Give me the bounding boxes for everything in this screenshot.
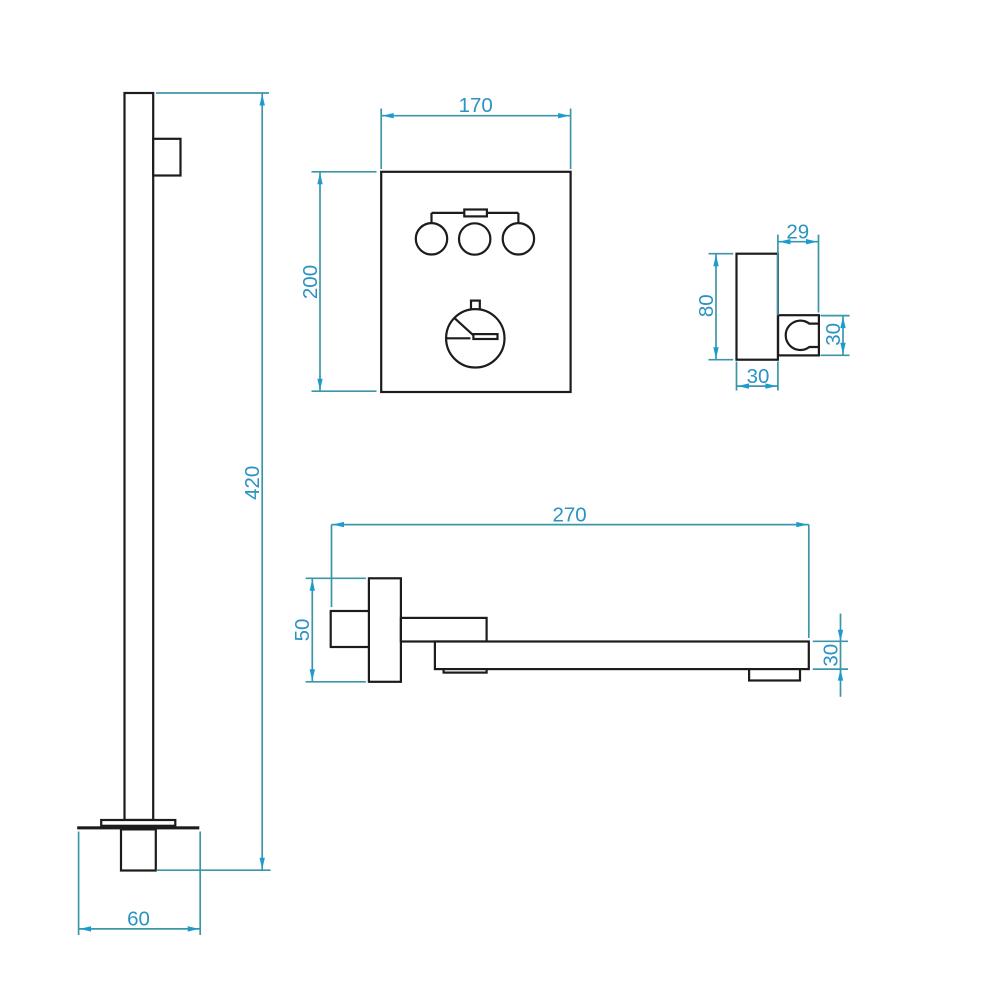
svg-text:80: 80	[695, 294, 718, 317]
svg-text:30: 30	[747, 365, 770, 388]
svg-text:30: 30	[819, 644, 842, 667]
svg-text:270: 270	[552, 503, 586, 526]
svg-text:60: 60	[127, 908, 150, 931]
svg-text:420: 420	[241, 466, 264, 500]
svg-text:30: 30	[822, 323, 845, 346]
svg-text:170: 170	[459, 94, 493, 117]
svg-text:50: 50	[291, 619, 314, 642]
svg-text:200: 200	[299, 265, 322, 299]
svg-text:29: 29	[786, 221, 809, 244]
